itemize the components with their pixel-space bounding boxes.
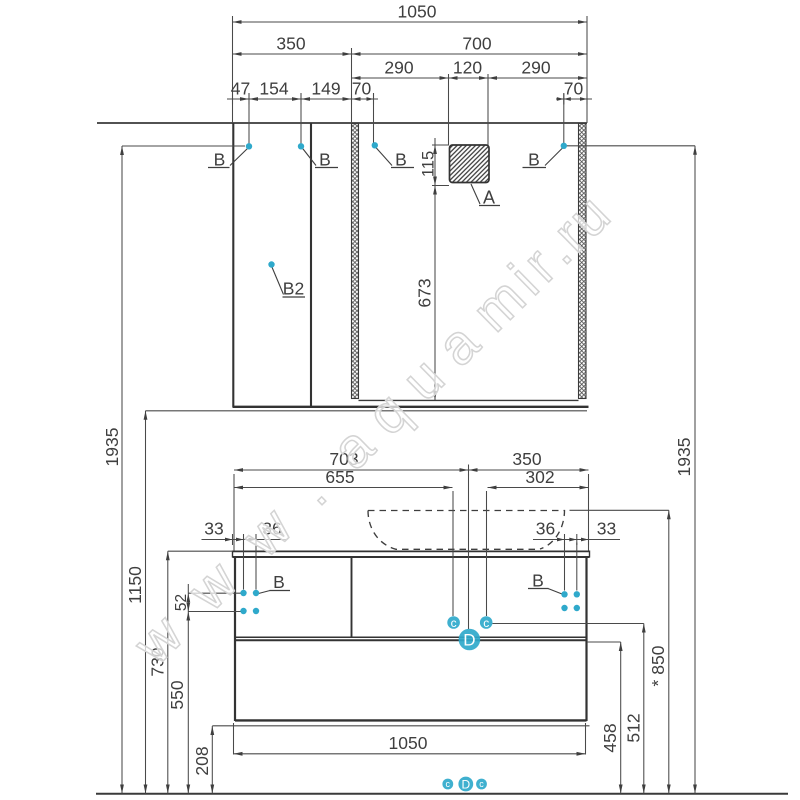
svg-text:B: B [395,150,407,170]
svg-text:B: B [273,572,285,592]
svg-text:1050: 1050 [389,733,428,753]
svg-text:1050: 1050 [398,2,437,22]
svg-text:c: c [479,779,484,789]
svg-text:1935: 1935 [674,438,694,477]
svg-text:208: 208 [192,746,212,775]
svg-text:B: B [214,150,226,170]
svg-text:1935: 1935 [102,428,122,467]
svg-text:c: c [483,616,489,630]
svg-text:1150: 1150 [125,566,145,604]
svg-text:A: A [483,188,495,208]
svg-text:302: 302 [525,467,554,487]
svg-text:290: 290 [521,58,550,78]
svg-text:154: 154 [259,79,288,99]
svg-text:350: 350 [512,449,541,469]
svg-text:120: 120 [453,58,482,78]
svg-text:47: 47 [231,79,250,99]
svg-text:D: D [461,777,470,791]
svg-text:700: 700 [462,34,491,54]
svg-text:350: 350 [276,34,305,54]
svg-text:D: D [463,631,475,650]
svg-text:70: 70 [564,79,584,99]
svg-text:290: 290 [384,58,413,78]
svg-text:149: 149 [311,79,340,99]
svg-text:36: 36 [536,519,555,539]
svg-text:70: 70 [352,79,372,99]
svg-text:512: 512 [623,713,643,742]
svg-text:c: c [451,616,457,630]
svg-text:B: B [528,150,540,170]
svg-text:458: 458 [600,723,620,752]
svg-text:B2: B2 [283,279,304,299]
svg-text:673: 673 [414,278,434,307]
svg-text:* 850: * 850 [648,645,668,686]
svg-text:B: B [319,150,331,170]
svg-text:115: 115 [419,151,437,177]
svg-text:33: 33 [597,519,616,539]
svg-text:550: 550 [167,680,187,709]
svg-text:B: B [532,571,544,591]
svg-text:c: c [446,779,451,789]
